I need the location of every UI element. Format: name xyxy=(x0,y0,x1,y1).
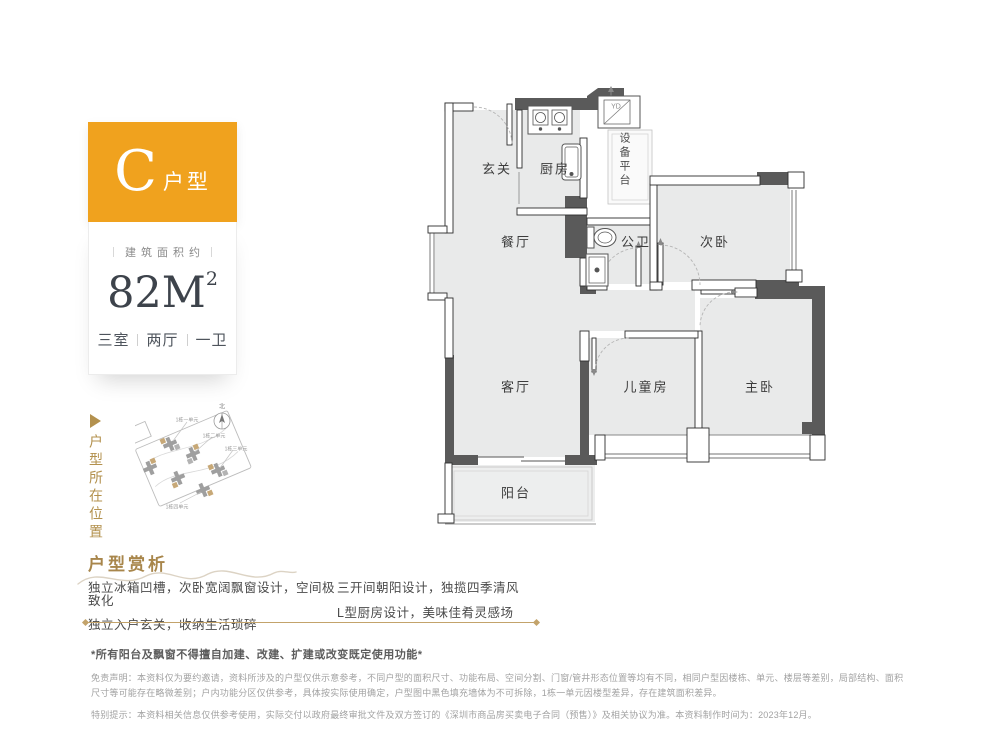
right-tick xyxy=(211,247,212,257)
left-tick xyxy=(113,247,114,257)
bullet: 三开间朝阳设计，独揽四季清风 xyxy=(337,582,537,595)
unit-card-body: 建筑面积约 82M2 三室 两厅 一卫 xyxy=(88,222,237,375)
room-label-balcony: 阳台 xyxy=(501,483,531,502)
bullet: 独立冰箱凹槽，次卧宽阔飘窗设计，空间极致化 xyxy=(88,582,343,607)
site-buildings xyxy=(140,434,228,501)
room-label-living: 客厅 xyxy=(501,377,531,396)
area-value: 82M2 xyxy=(89,270,236,315)
site-plan xyxy=(135,396,325,554)
building-label-4: 1栋四单元 xyxy=(166,504,189,511)
area-sup: 2 xyxy=(206,268,218,290)
building-label-2: 1栋二单元 xyxy=(203,433,226,440)
site-annex-outline xyxy=(135,421,151,445)
area-label: 建筑面积约 xyxy=(125,244,205,260)
layout-part-baths: 一卫 xyxy=(196,329,228,350)
room-label-equipment: 设备平台 xyxy=(616,132,632,188)
room-label-kids: 儿童房 xyxy=(623,377,668,396)
compass-north-label: 北 xyxy=(219,402,225,411)
layout-row: 三室 两厅 一卫 xyxy=(89,329,236,350)
layout-part-halls: 两厅 xyxy=(146,329,178,350)
compass-icon xyxy=(214,413,230,429)
room-label-dining: 餐厅 xyxy=(501,232,531,251)
unit-type-suffix: 户型 xyxy=(163,166,211,196)
unit-letter: C xyxy=(114,144,157,200)
disclaimer-statement: 免责声明：本资料仅为要约邀请，资料所涉及的户型仅供示意参考，不同户型的面积尺寸、… xyxy=(91,671,909,702)
building-label-3: 1栋三单元 xyxy=(225,446,248,453)
analysis-bullets-right: 三开间朝阳设计，独揽四季清风 L型厨房设计，美味佳肴灵感场 xyxy=(337,582,537,631)
room-label-entry: 玄关 xyxy=(482,159,512,178)
disclaimer-block: *所有阳台及飘窗不得擅自加建、改建、扩建或改变既定使用功能* 免责声明：本资料仅… xyxy=(91,646,909,729)
room-label-bath: 公卫 xyxy=(621,232,651,251)
separator xyxy=(187,334,188,346)
unit-card: C 户型 建筑面积约 82M2 三室 两厅 一卫 xyxy=(88,122,237,375)
room-label-kitchen: 厨房 xyxy=(540,159,570,178)
room-label-master: 主卧 xyxy=(745,377,775,396)
floorplan-brochure-page: { "unit_card": { "letter": "C", "type_su… xyxy=(0,0,1000,736)
layout-part-rooms: 三室 xyxy=(97,329,129,350)
area-label-row: 建筑面积约 xyxy=(89,244,236,260)
unit-card-header: C 户型 xyxy=(88,122,237,222)
location-side-label: 户型所在位置 xyxy=(86,434,106,542)
building-label-1: 1栋一单元 xyxy=(176,417,199,424)
toilet-icon xyxy=(587,227,594,248)
disclaimer-special: 特别提示：本资料相关信息仅供参考使用，实际交付以政府最终审批文件及双方签订的《深… xyxy=(91,708,909,723)
gold-divider xyxy=(85,622,537,623)
room-label-yd: YD xyxy=(611,104,621,111)
balcony-sliding-door xyxy=(478,457,566,461)
bullet: 独立入户玄关，收纳生活琐碎 xyxy=(88,619,343,632)
separator xyxy=(137,334,138,346)
room-label-bedroom2: 次卧 xyxy=(700,232,730,251)
balcony-notice: *所有阳台及飘窗不得擅自加建、改建、扩建或改变既定使用功能* xyxy=(91,646,909,662)
location-arrow-icon xyxy=(90,414,101,428)
analysis-bullets-left: 独立冰箱凹槽，次卧宽阔飘窗设计，空间极致化 独立入户玄关，收纳生活琐碎 xyxy=(88,582,343,644)
bullet: L型厨房设计，美味佳肴灵感场 xyxy=(337,607,537,620)
